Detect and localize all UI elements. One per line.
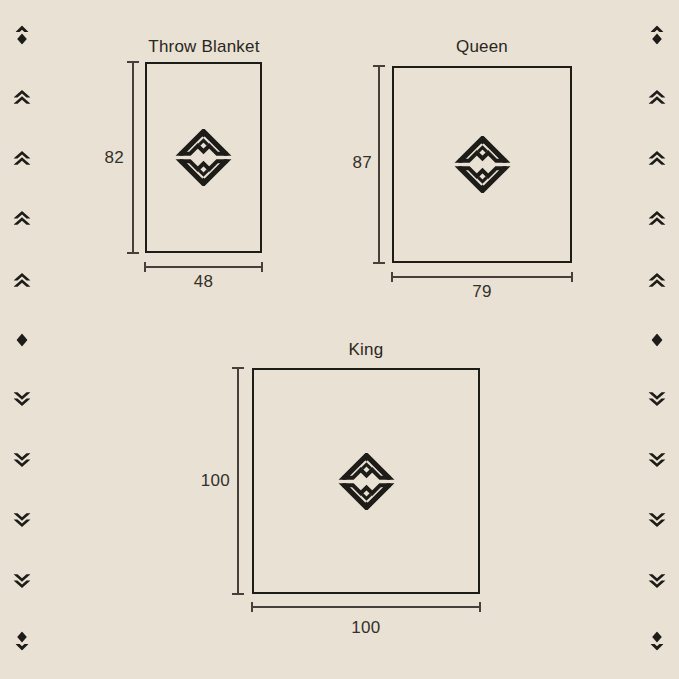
width-value-label: 100: [252, 618, 480, 638]
diagram-title: Throw Blanket: [104, 37, 304, 57]
dimension-cap: [373, 65, 385, 66]
dimension-cap: [232, 593, 244, 594]
double-chevron-down-icon: [649, 392, 666, 407]
width-dimension-line: [392, 276, 572, 277]
diamond-chevron-down-icon: [16, 632, 29, 651]
double-chevron-up-icon: [14, 273, 31, 288]
blanket-size-chart: Throw Blanket 82 48 Queen 87 79: [0, 0, 679, 679]
double-chevron-up-icon: [649, 273, 666, 288]
dimension-cap: [373, 262, 385, 263]
height-value-label: 100: [185, 471, 230, 491]
dimension-cap: [144, 262, 145, 272]
double-chevron-down-icon: [14, 574, 31, 589]
height-value-label: 87: [332, 153, 372, 173]
dimension-cap: [232, 367, 244, 368]
double-chevron-up-icon: [649, 211, 666, 226]
dimension-cap: [127, 252, 139, 253]
dimension-cap: [251, 602, 252, 612]
ornament-column-right: [635, 0, 679, 679]
blanket-outline: [252, 368, 480, 594]
height-value-label: 82: [86, 148, 124, 168]
diamond-icon: [652, 334, 663, 347]
double-chevron-down-icon: [14, 453, 31, 468]
width-dimension-line: [145, 266, 262, 267]
chevron-up-diamond-icon: [651, 26, 664, 45]
double-chevron-up-icon: [14, 90, 31, 105]
blanket-outline: [392, 66, 572, 263]
double-chevron-down-icon: [14, 392, 31, 407]
dimension-cap: [391, 272, 392, 282]
chevron-up-diamond-icon: [16, 26, 29, 45]
width-value-label: 79: [392, 282, 572, 302]
brand-diamond-emblem-icon: [338, 453, 395, 510]
height-dimension-line: [378, 66, 379, 263]
blanket-outline: [145, 62, 262, 253]
width-value-label: 48: [145, 272, 262, 292]
height-dimension-line: [132, 62, 133, 253]
double-chevron-up-icon: [14, 151, 31, 166]
double-chevron-down-icon: [14, 513, 31, 528]
double-chevron-up-icon: [649, 90, 666, 105]
dimension-cap: [127, 61, 139, 62]
double-chevron-down-icon: [649, 574, 666, 589]
double-chevron-up-icon: [649, 151, 666, 166]
diagram-title: King: [252, 340, 480, 360]
double-chevron-down-icon: [649, 453, 666, 468]
diagram-title: Queen: [392, 37, 572, 57]
brand-diamond-emblem-icon: [454, 136, 511, 193]
dimension-cap: [571, 272, 572, 282]
dimension-cap: [479, 602, 480, 612]
diamond-icon: [17, 334, 28, 347]
ornament-column-left: [0, 0, 44, 679]
diamond-chevron-down-icon: [651, 632, 664, 651]
brand-diamond-emblem-icon: [175, 129, 232, 186]
double-chevron-up-icon: [14, 211, 31, 226]
double-chevron-down-icon: [649, 513, 666, 528]
dimension-cap: [261, 262, 262, 272]
width-dimension-line: [252, 606, 480, 607]
height-dimension-line: [237, 368, 238, 594]
